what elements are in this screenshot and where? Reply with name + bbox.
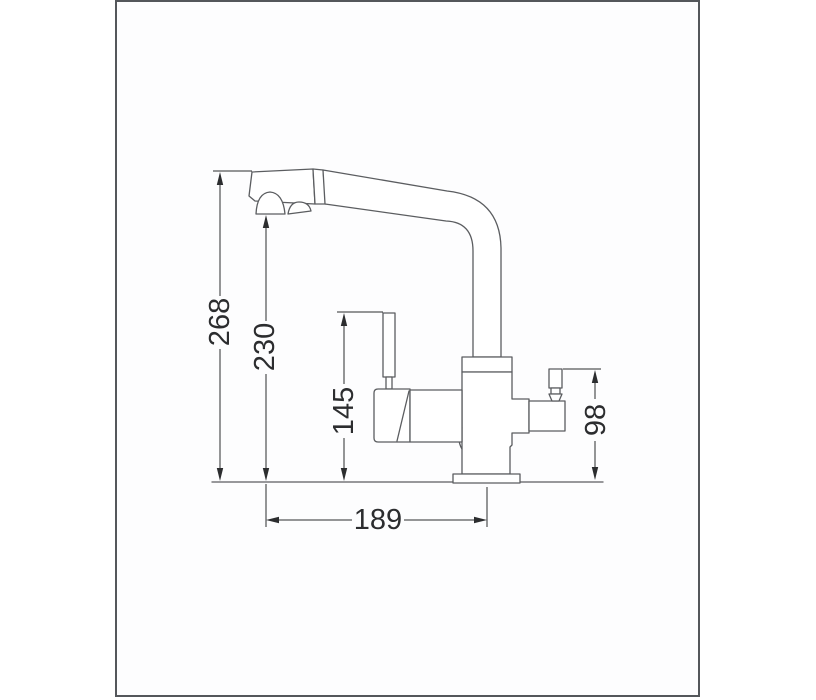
lever-escutcheon [374, 389, 410, 442]
dim-189-label: 189 [354, 504, 402, 536]
faucet-technical-drawing: 268 230 145 [0, 0, 816, 700]
dim-230-label: 230 [249, 323, 281, 371]
right-side-handle [549, 369, 562, 401]
lever-connector [410, 390, 462, 442]
drawing-frame [116, 1, 699, 696]
right-handle-neck [551, 388, 560, 394]
right-handle-collar [549, 394, 562, 401]
dim-268-label: 268 [204, 298, 236, 346]
lever-rod [383, 313, 395, 377]
page: 268 230 145 [0, 0, 816, 700]
dim-145-label: 145 [328, 387, 360, 435]
lever-neck [386, 377, 392, 389]
dim-98-label: 98 [580, 404, 612, 436]
right-valve-block [529, 401, 565, 431]
body-cap [462, 357, 512, 372]
right-handle-rod [549, 369, 562, 388]
base-plate [453, 474, 520, 483]
